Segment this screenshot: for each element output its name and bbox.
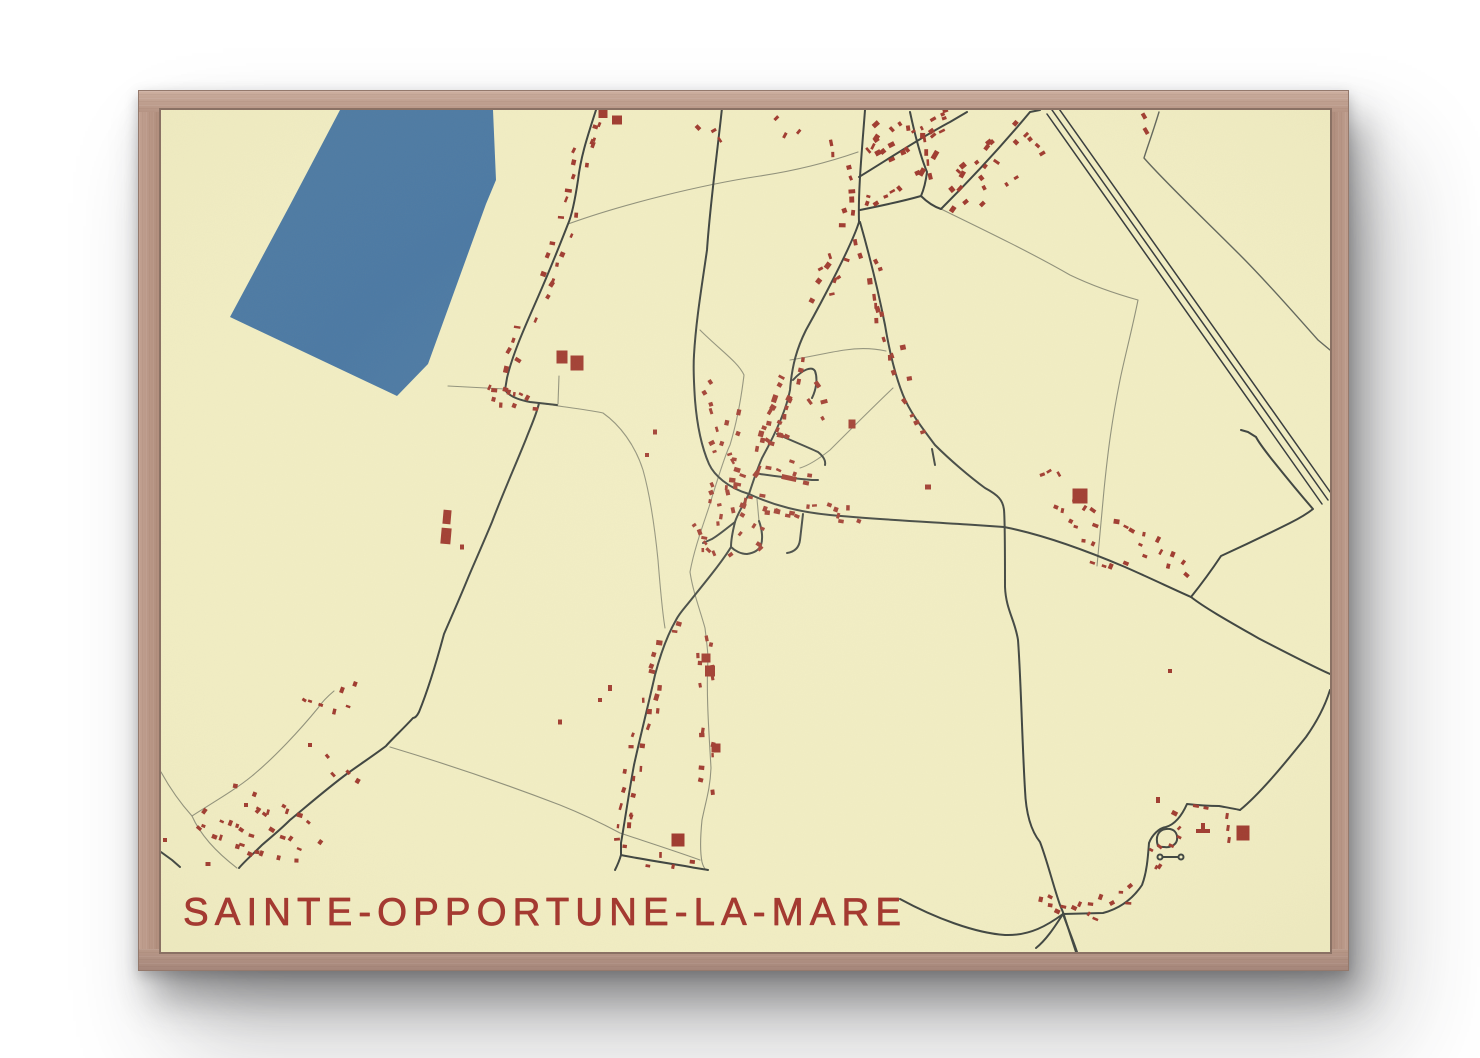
svg-text:SAINTE-OPPORTUNE-LA-MARE: SAINTE-OPPORTUNE-LA-MARE — [183, 891, 907, 934]
